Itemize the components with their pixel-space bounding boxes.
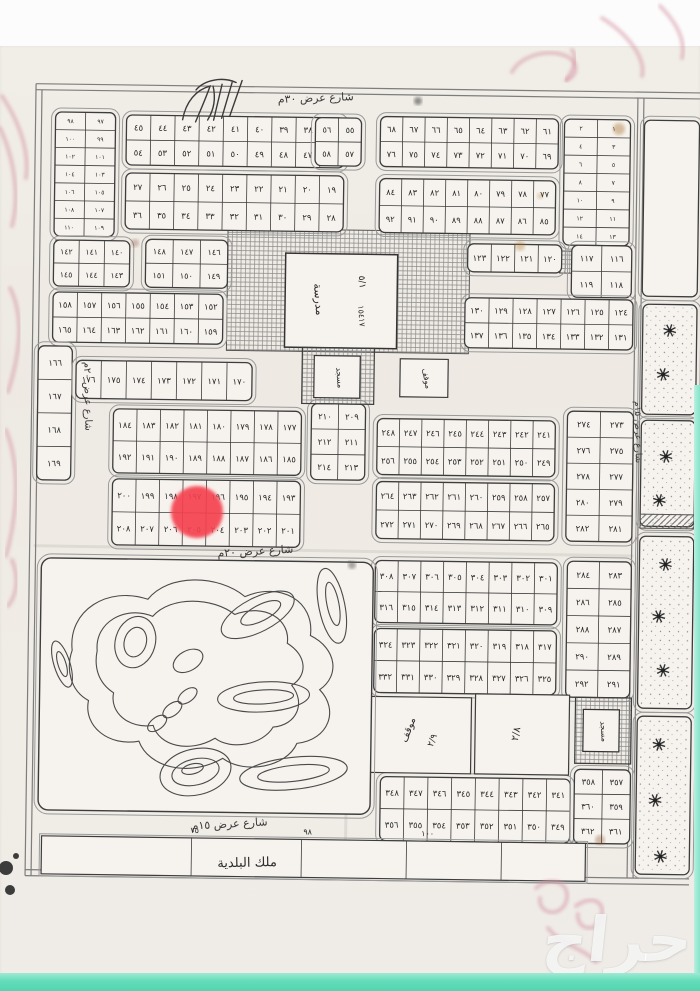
plot-number: ٢٨٢ (576, 524, 590, 534)
plot-number: ١٣٣ (566, 333, 580, 343)
plot-block: ١٩٢٠٢١٢٢٢٣٢٤٢٥٢٦٢٧٢٨٢٩٣٠٣١٣٢٣٣٣٤٣٥٣٦ (121, 169, 348, 236)
plot-number: ٣١٥ (402, 603, 416, 613)
plot-number: ١٤٤ (85, 271, 98, 280)
plot-number: ٨٩ (452, 215, 462, 225)
plot-number: ١٢٨ (518, 307, 532, 317)
plot-number: ١٨١ (189, 422, 203, 432)
plot-number: ١٣٦ (494, 332, 508, 342)
plot-number: ٣٦٠ (581, 801, 595, 811)
plot-number: ١٨٧ (235, 454, 249, 464)
plot-number: ٢٤٩ (537, 458, 551, 468)
plot-number: ٢٤٥ (448, 428, 462, 438)
plot-number: ٣٩ (279, 125, 289, 135)
plot-number: ٢٧١ (402, 519, 416, 529)
plot-number: ٥١ (206, 149, 215, 159)
plot-number: ٢٢ (254, 185, 264, 195)
street-name-label: شارع عرض ٣٠م (277, 90, 353, 106)
plot-number: ١٦٠ (179, 327, 193, 337)
plot-number: ١٧٣ (157, 376, 171, 386)
plot-number: ٣٢٦ (515, 674, 529, 684)
plot-number: ٣٤٨ (385, 789, 399, 799)
pink-pen-scribble (8, 560, 16, 606)
plot-number: ٣٥٣ (456, 822, 470, 832)
plot-number: ٢٨ (327, 214, 337, 224)
plot-number: ٣٠٥ (448, 573, 462, 583)
plot-block: ٢٠٩٢١٠٢١١٢١٢٢١٣٢١٤ (307, 399, 370, 484)
ink-blob (0, 861, 13, 875)
pink-pen-scribble (512, 53, 576, 80)
plot-block: ١٧٠١٧١١٧٢١٧٣١٧٤١٧٥١٧٦ (72, 356, 257, 405)
plot-number: ١٩٣ (282, 494, 296, 504)
plot-number: ٣٣٠ (424, 673, 438, 683)
plaza-label: مدرسة (311, 283, 326, 316)
plot-number: ٢٦٠ (470, 492, 484, 502)
plot-number: ٢٧٥ (609, 447, 623, 457)
pink-pen-scribble (536, 881, 567, 912)
plot-number: ٨٤ (386, 187, 395, 197)
plot-number: ٥ (612, 162, 615, 169)
park-area (34, 554, 378, 819)
plot-number: ٢٨٧ (608, 626, 622, 636)
street-name-label: شارع عرض ٢٠م (81, 362, 93, 431)
plot-block: ١٥٢١٥٣١٥٤١٥٥١٥٦١٥٧١٥٨١٥٩١٦٠١٦١١٦٢١٦٣١٦٤١… (48, 288, 227, 348)
paper-stain (613, 123, 625, 135)
plot-number: ٣٠٧ (403, 572, 417, 582)
plot-number: ٢١ (278, 185, 287, 195)
plot-number: ٢٥٠ (515, 457, 529, 467)
plot-block: ٥٥٥٦٥٧٥٨ (311, 114, 366, 171)
plot-number: ٢٧٨ (576, 472, 590, 482)
plot-number: ٢٧٩ (609, 499, 623, 509)
plot-number: ١٢٩ (494, 306, 508, 316)
plot-number: ١٩٤ (258, 493, 272, 503)
plot-number: ٣٣ (205, 212, 215, 222)
plot-number: ٣٠٩ (538, 605, 552, 615)
plot-number: ٣٤٢ (528, 791, 542, 801)
plot-number: ١٣١ (614, 333, 628, 343)
plaza-label: ١٥٤١٧ (356, 305, 367, 328)
plot-number: ٢٦٨ (469, 520, 483, 530)
plot-number: ١٠٢ (65, 153, 75, 160)
pink-pen-scribble (660, 6, 683, 58)
plot-number: ٢٨٤ (576, 571, 590, 581)
paper-stain (515, 241, 525, 251)
plot-number: ١٤٥ (60, 270, 73, 279)
hatched-area (640, 514, 694, 529)
plot-number: ٤٨ (279, 150, 289, 160)
service-building: مسجد (302, 347, 375, 404)
paper-stain (595, 835, 605, 845)
plot-number: ٣١١ (493, 605, 507, 615)
plot-number: ٩٠ (430, 215, 439, 225)
plot-number: ١٩٩ (141, 492, 155, 502)
plot-number: ٤٤ (158, 124, 167, 134)
plot-block: ٢٧٣٢٧٤٢٧٥٢٧٦٢٧٧٢٧٨٢٧٩٢٨٠٢٨١٢٨٢ (562, 407, 638, 546)
plot-number: ١٤١ (85, 248, 98, 257)
plot-number: ١٠١ (95, 154, 105, 161)
plot-number: ٥٦ (323, 125, 333, 135)
plot-number: ٢٤٦ (426, 428, 440, 438)
plot-number: ١٩٠ (165, 453, 179, 463)
plot-number: ٢٤١ (537, 430, 551, 440)
plot-number: ١٦٣ (106, 326, 120, 336)
plot-number: ١٢٣ (473, 254, 487, 264)
plot-number: ٢٦٧ (491, 521, 505, 531)
plot-number: ١٤٧ (180, 247, 194, 257)
plot-number: ١٥١ (152, 270, 165, 280)
plot-block: ٢٥٧٢٥٨٢٥٩٢٦٠٢٦١٢٦٢٢٦٣٢٦٤٢٦٥٢٦٦٢٦٧٢٦٨٢٦٩٢… (372, 477, 559, 545)
plot-number: ١٣٤ (542, 332, 556, 342)
plot-number: ٣١٤ (425, 604, 439, 614)
plot-number: ١٤٦ (207, 247, 221, 257)
green-strip-block (637, 300, 700, 419)
plot-number: ٢٤٤ (471, 429, 485, 439)
plot-number: ٢٠٧ (140, 525, 154, 535)
plot-number: ١٨٣ (142, 421, 156, 431)
plot-number: ٢٦٦ (514, 521, 528, 531)
red-location-marker (171, 486, 223, 538)
plot-number: ١٧١ (207, 377, 221, 387)
plot-number: ١٢٦ (566, 307, 580, 317)
plot-block: ٢٤١٢٤٢٢٤٣٢٤٤٢٤٥٢٤٦٢٤٧٢٤٨٢٤٩٢٥٠٢٥١٢٥٢٢٥٣٢… (373, 414, 560, 481)
plot-block: ٦١٦٢٦٣٦٤٦٥٦٦٦٧٦٨٦٩٧٠٧١٧٢٧٣٧٤٧٥٧٦ (376, 112, 563, 173)
plot-number: ١٠٧ (94, 207, 105, 214)
plot-number: ١١٨ (609, 281, 623, 291)
plot-number: ١٨٠ (212, 422, 226, 432)
plot-number: ٢٦٤ (381, 491, 395, 501)
ink-blob (5, 885, 15, 895)
plot-number: ٦٩ (542, 151, 552, 161)
plot-number: ١٢٠ (543, 255, 557, 265)
plot-number: ٩٧ (97, 119, 104, 126)
plot-number: ١٠٦ (65, 189, 75, 196)
plot-number: ٦٧ (409, 124, 419, 134)
plot-number: ٣٢٩ (447, 674, 461, 684)
plot-number: ٢١٤ (317, 463, 331, 473)
plot-number: ٥٣ (158, 149, 168, 159)
subdivision-map: ٩٧٩٨٩٩١٠٠١٠١١٠٢١٠٣١٠٤١٠٥١٠٦١٠٧١٠٨١٠٩١١٠٣… (0, 0, 700, 991)
plot-number: ٢٤٨ (382, 427, 396, 437)
plot-number: ١٦٩ (47, 459, 61, 469)
plot-number: ٢٨٥ (608, 598, 622, 608)
plot-number: ١٥٣ (180, 302, 194, 312)
plot-number: ٢٥٥ (403, 456, 417, 466)
plot-number: ١٧٠ (233, 377, 247, 387)
plot-number: ٥٨ (322, 149, 331, 159)
plot-number: ٣٦١ (609, 826, 623, 836)
plot-number: ١٦٤ (82, 326, 96, 336)
plot-number: ١٠٤ (65, 171, 75, 178)
plot-number: ٢٧٣ (610, 421, 624, 431)
plot-number: ٣٤٦ (433, 789, 447, 799)
plot-number: ٢٥٧ (536, 493, 550, 503)
plot-number: ١٢١ (520, 254, 534, 264)
plot-number: ٧٣ (453, 150, 463, 160)
plot-number: ٢٩١ (607, 680, 621, 690)
plot-number: ٣٥ (157, 211, 166, 221)
ink-blob (13, 853, 19, 859)
plot-number: ٣٥٨ (582, 777, 596, 787)
pink-pen-scribble (576, 900, 602, 928)
plot-number: ٣١٣ (448, 604, 462, 614)
plot-number: ٨٦ (518, 216, 528, 226)
plot-number: ٥٢ (182, 149, 192, 159)
plot-number: ٢١٢ (318, 438, 332, 448)
plot-number: ١٦٨ (47, 425, 61, 435)
paper-stain (348, 561, 356, 569)
plot-number: ٣٠١ (539, 574, 553, 584)
plot-number: ٢ (579, 125, 582, 132)
plot-number: ٣٥٥ (408, 821, 422, 831)
plot-number: ٣١٦ (379, 603, 393, 613)
plot-number: ٦٨ (387, 124, 397, 134)
plot-number: ١٠٠ (65, 136, 75, 143)
plot-number: ٢٥ (182, 184, 191, 194)
plot-number: ١٦٢ (131, 326, 145, 336)
green-strip-block (633, 532, 698, 713)
plot-number: ٣١٢ (470, 604, 484, 614)
service-building-label: مسجد (334, 367, 344, 388)
plot-number: ٣٢٧ (492, 674, 506, 684)
plot-number: ١٧٢ (182, 377, 196, 387)
plot-number: ١٣٢ (590, 333, 604, 343)
plot-number: ٢٤٢ (515, 429, 529, 439)
plot-number: ١٤٣ (110, 271, 123, 280)
plot-number: ٢٤ (206, 184, 215, 194)
plot-number: ١٥٨ (58, 301, 72, 311)
paper-stain (131, 239, 139, 247)
plot-number: ٤ (579, 143, 582, 150)
plot-number: ٣٤٧ (409, 789, 423, 799)
plot-number: ٣٠ (278, 213, 287, 223)
plot-number: ٦٦ (431, 125, 441, 135)
plot-number: ١٦٦ (48, 359, 62, 369)
plot-number: ٢٦٩ (447, 520, 461, 530)
dimension-number: ٩٨ (303, 827, 312, 836)
plot-number: ٣٦٢ (581, 826, 595, 836)
plot-number: ٣١٧ (538, 643, 552, 653)
plot-number: ٢٧٠ (425, 520, 439, 530)
plot-number: ٣٢٠ (470, 642, 484, 652)
plot-number: ١٤٨ (153, 246, 167, 256)
plot-number: ٣٤٩ (551, 823, 565, 833)
plot-number: ٣٥٠ (527, 823, 541, 833)
plot-number: ١٤٠ (111, 248, 124, 257)
plot-number: ١٩١ (141, 453, 155, 463)
plot-number: ٢٨٨ (575, 625, 589, 635)
plot-number: ١٩ (327, 186, 337, 196)
plot-number: ٤٣ (182, 124, 192, 134)
plot-number: ٣٢٤ (379, 640, 393, 650)
plot-number: ٧٠ (520, 151, 529, 161)
plot-block: ١١٦١١٧١١٨١١٩ (567, 241, 636, 302)
plot-number: ٢٧٤ (577, 420, 591, 430)
plot-number: ٣٥٧ (610, 777, 624, 787)
pink-pen-scribble (548, 928, 596, 962)
plot-number: ٣٠٢ (516, 574, 530, 584)
plot-number: ١٥٢ (204, 303, 218, 313)
street-name-label: شارع عرض ١٥م (191, 815, 268, 832)
plot-number: ٣١٨ (515, 642, 529, 652)
plot-number: ١٥٧ (82, 301, 96, 311)
plot-number: ٣١٠ (516, 605, 530, 615)
plot-number: ٢٥٩ (492, 492, 506, 502)
plot-block: ١٤٦١٤٧١٤٨١٤٩١٥٠١٥١ (141, 235, 232, 292)
plot-number: ١٣٥ (518, 332, 532, 342)
plot-number: ١٨٥ (282, 455, 296, 465)
plot-number: ٤١ (231, 125, 240, 135)
plot-number: ٨٠ (474, 188, 483, 198)
plot-number: ٢٥٨ (514, 493, 528, 503)
plot-number: ٦٢ (520, 126, 530, 136)
plot-number: ١٦٧ (48, 392, 62, 402)
plot-number: ١١٧ (580, 254, 594, 264)
compass-doodle (214, 84, 223, 120)
plot-block: ١٧٧١٧٨١٧٩١٨٠١٨١١٨٢١٨٣١٨٤١٨٥١٨٦١٨٧١٨٨١٨٩١… (109, 405, 306, 480)
plot-number: ٣٥٤ (432, 821, 446, 831)
plot-block: ٣٠١٣٠٢٣٠٣٣٠٤٣٠٥٣٠٦٣٠٧٣٠٨٣٠٩٣١٠٣١١٣١٢٣١٣٣… (371, 556, 562, 629)
plot-number: ٨٣ (408, 187, 418, 197)
service-building: مسجد (575, 697, 632, 764)
plot-number: ٢٨٩ (607, 653, 621, 663)
plot-number: ١٨٢ (165, 421, 179, 431)
plot-number: ١٣ (609, 234, 616, 241)
plot-number: ٩١ (408, 214, 417, 224)
plot-number: ٣٥٢ (480, 822, 494, 832)
plot-number: ٢٥٢ (470, 457, 484, 467)
plot-block: ٢٨٣٢٨٤٢٨٥٢٨٦٢٨٧٢٨٨٢٨٩٢٩٠٢٩١٢٩٢ (562, 557, 636, 702)
plot-number: ١٥٥ (131, 302, 145, 312)
plot-number: ٢٧ (133, 183, 143, 193)
green-strip-block (631, 712, 695, 879)
plot-block: ١٦٦١٦٧١٦٨١٦٩ (33, 342, 77, 485)
plot-number: ٦٤ (476, 125, 485, 135)
plot-number: ٢٥١ (492, 457, 506, 467)
dimension-number: ١٠٠ (421, 829, 434, 838)
plot-number: ٣٢٨ (469, 674, 483, 684)
plot-number: ١٢ (576, 215, 583, 222)
plot-number: ٤٥ (134, 123, 143, 133)
plot-number: ٣٥٦ (385, 821, 399, 831)
plot-number: ٢٧٢ (380, 519, 394, 529)
plot-number: ٢٥٦ (381, 456, 395, 466)
plot-number: ١٥٩ (204, 328, 218, 338)
pink-pen-scribble (602, 18, 643, 76)
plot-number: ١٨٩ (188, 454, 202, 464)
plot-number: ٢٦١ (447, 492, 461, 502)
plot-number: ١٦٥ (58, 325, 72, 335)
plot-block: ١٤٠١٤١١٤٢١٤٣١٤٤١٤٥ (49, 236, 134, 291)
plot-block: ١٢٠١٢١١٢٢١٢٣ (463, 240, 565, 277)
plot-block: ٣١٧٣١٨٣١٩٣٢٠٣٢١٣٢٢٣٢٣٣٢٤٣٢٥٣٢٦٣٢٧٣٢٨٣٢٩٣… (370, 624, 561, 699)
plot-number: ٢١١ (345, 438, 359, 448)
plot-number: ١٠ (577, 197, 584, 204)
plot-number: ١٣٧ (470, 331, 484, 341)
plot-number: ٣٤ (181, 212, 190, 222)
plot-number: ٨٢ (430, 188, 440, 198)
plot-number: ٩٩ (97, 136, 104, 143)
plot-number: ٢٤٣ (493, 429, 507, 439)
plot-number: ٣٣٢ (378, 673, 392, 683)
plot-number: ٣١ (254, 213, 263, 223)
teal-border-right (694, 385, 700, 991)
plot-number: ٦١ (543, 126, 552, 136)
paper-stain (537, 193, 543, 199)
service-building-label: مسجد (598, 721, 608, 742)
plot-number: ١١٦ (610, 255, 624, 265)
plot-block: ١٢٣٤٥٦٧٨٩١٠١١١٢١٣١٤ (559, 115, 635, 250)
plot-number: ٢٠٠ (117, 491, 131, 501)
pink-pen-scribble (6, 430, 16, 556)
plot-number: ٧١ (498, 151, 507, 161)
plot-number: ١٠٥ (95, 189, 105, 196)
plot-number: ١٢٤ (614, 308, 628, 318)
plot-number: ٧٦ (387, 149, 397, 159)
plot-number: ٥٠ (230, 150, 239, 160)
plot-number: ٢٦ (157, 183, 167, 193)
plot-number: ٧٥ (409, 149, 418, 159)
plot-number: ٣٥٩ (609, 802, 623, 812)
plot-number: ٣٤٤ (480, 790, 494, 800)
plot-number: ١٢٢ (496, 254, 510, 264)
plot-number: ٢١٣ (344, 463, 358, 473)
plot-number: ٥٥ (346, 125, 355, 135)
plot-number: ٢٠١ (281, 526, 295, 536)
plot-number: ٣٤٥ (456, 790, 470, 800)
plot-number: ١١٠ (64, 224, 74, 231)
plot-block: ١٢٤١٢٥١٢٦١٢٧١٢٨١٢٩١٣٠١٣١١٣٢١٣٣١٣٤١٣٥١٣٦١… (460, 294, 637, 354)
plot-number: ٢٨٠ (576, 498, 590, 508)
plot-number: ٢٠ (303, 185, 312, 195)
plot-number: ١٤ (576, 233, 583, 240)
plot-number: ١٦١ (155, 327, 169, 337)
plot-number: ٢٨٦ (576, 598, 590, 608)
plot-number: ٢٣ (230, 184, 240, 194)
plaza-label: ٥/١ (356, 275, 367, 288)
map-root: ٩٧٩٨٩٩١٠٠١٠١١٠٢١٠٣١٠٤١٠٥١٠٦١٠٧١٠٨١٠٩١١٠٣… (0, 6, 700, 962)
plot-number: ٥٧ (345, 149, 355, 159)
plot-number: ٥٤ (133, 148, 142, 158)
plot-number: ٢٦٢ (425, 491, 439, 501)
plot-number: ٣٦ (133, 211, 143, 221)
plot-number: ١٠٨ (64, 207, 75, 214)
plot-number: ٨٥ (540, 216, 549, 226)
plot-number: ٣٢١ (447, 641, 461, 651)
plot-number: ٢٦٣ (403, 491, 417, 501)
services-plaza: مدرسة٥/١١٥٤١٧ (284, 253, 397, 349)
plot-number: ٤٠ (255, 125, 264, 135)
plot-number: ٤٢ (206, 124, 216, 134)
plot-number: ١٥٤ (155, 302, 169, 312)
plot-number: ٨٨ (474, 215, 484, 225)
plot-number: ٨١ (452, 188, 461, 198)
service-building: موقف٢/٩ (369, 696, 472, 773)
plot-number: ٢٤٧ (404, 428, 418, 438)
plot-number: ٣٤١ (551, 791, 565, 801)
plot-number: ١٠٣ (95, 172, 105, 179)
pink-pen-scribble (8, 288, 19, 392)
plot-number: ٨٧ (496, 216, 506, 226)
plot-number: ١٧٨ (259, 423, 273, 433)
plot-number: ٢٩٢ (575, 680, 589, 690)
plot-number: ١٨٤ (118, 421, 132, 431)
plot-number: ٢٩ (302, 213, 312, 223)
plot-number: ٢٧٧ (609, 473, 623, 483)
plot-number: ٣٠٤ (471, 573, 485, 583)
teal-border-bottom (0, 973, 700, 991)
paper-stain (414, 97, 422, 105)
plot-number: ١٧٤ (132, 376, 146, 386)
